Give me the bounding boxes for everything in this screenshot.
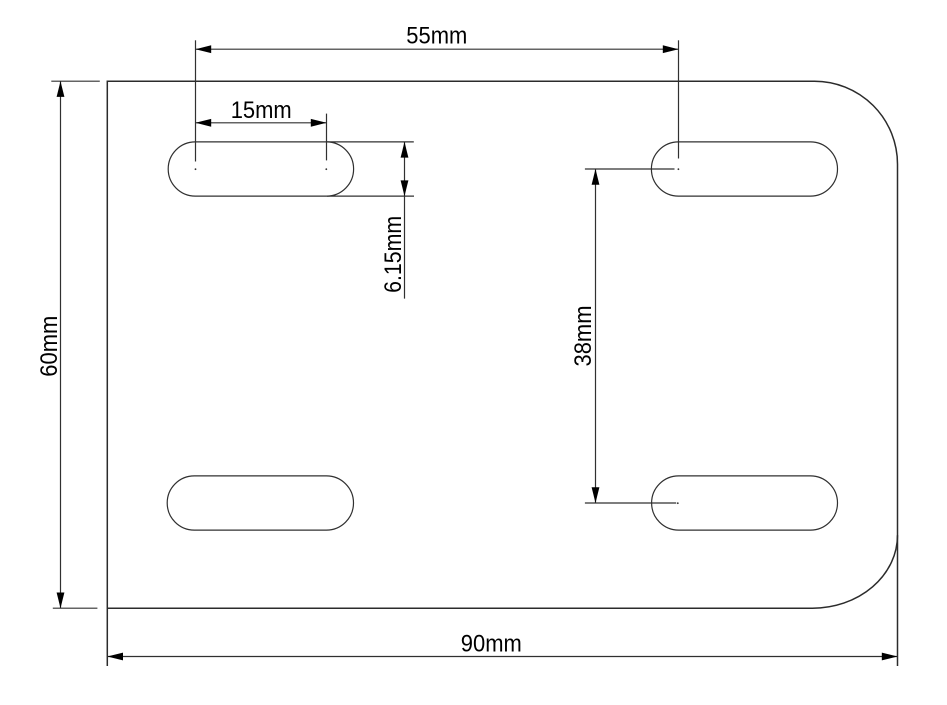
svg-text:90mm: 90mm: [461, 631, 522, 657]
svg-text:38mm: 38mm: [571, 306, 597, 367]
svg-text:15mm: 15mm: [231, 98, 292, 124]
svg-text:55mm: 55mm: [406, 23, 467, 49]
svg-text:6.15mm: 6.15mm: [381, 216, 407, 293]
svg-text:60mm: 60mm: [37, 316, 63, 377]
